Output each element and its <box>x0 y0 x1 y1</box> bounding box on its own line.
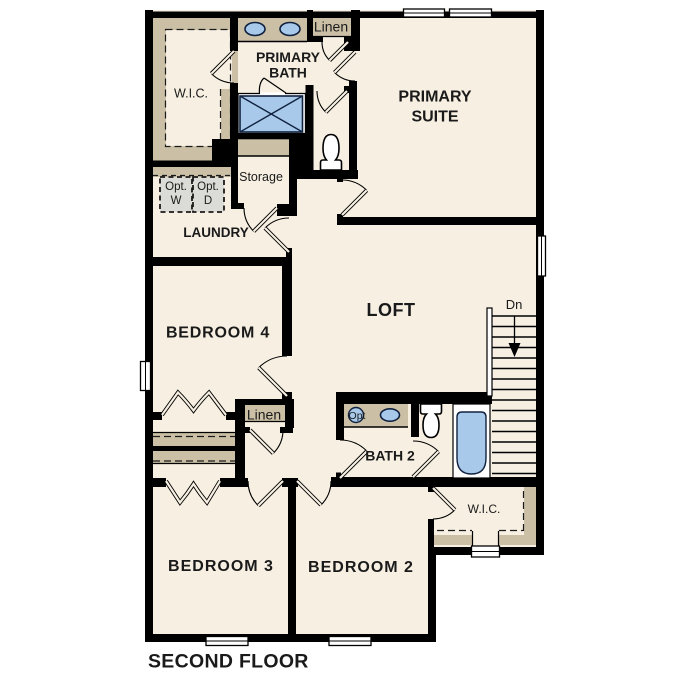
svg-text:LAUNDRY: LAUNDRY <box>183 225 249 240</box>
svg-text:LOFT: LOFT <box>367 300 416 320</box>
svg-text:Linen: Linen <box>247 407 281 423</box>
svg-text:Storage: Storage <box>239 170 283 184</box>
svg-text:D: D <box>204 195 212 207</box>
svg-text:Opt.: Opt. <box>197 181 219 193</box>
svg-text:Opt: Opt <box>349 410 366 422</box>
svg-text:PRIMARY: PRIMARY <box>256 49 321 65</box>
svg-text:Opt.: Opt. <box>165 181 187 193</box>
svg-text:W.I.C.: W.I.C. <box>468 502 501 516</box>
svg-text:SUITE: SUITE <box>411 109 458 126</box>
svg-text:Linen: Linen <box>314 19 348 35</box>
svg-text:SECOND FLOOR: SECOND FLOOR <box>148 651 309 673</box>
svg-text:W: W <box>171 195 182 207</box>
svg-text:Dn: Dn <box>506 297 523 312</box>
svg-text:BATH 2: BATH 2 <box>365 448 415 464</box>
svg-text:BEDROOM 4: BEDROOM 4 <box>166 325 270 342</box>
svg-text:BEDROOM 3: BEDROOM 3 <box>168 558 274 575</box>
svg-text:W.I.C.: W.I.C. <box>174 87 208 101</box>
svg-text:BATH: BATH <box>269 65 307 81</box>
svg-text:PRIMARY: PRIMARY <box>398 89 472 106</box>
svg-text:BEDROOM 2: BEDROOM 2 <box>308 559 414 576</box>
